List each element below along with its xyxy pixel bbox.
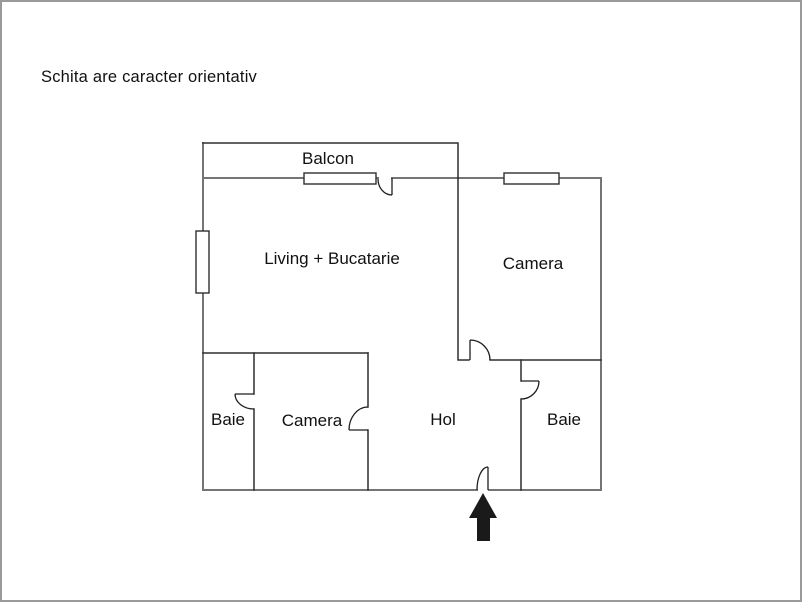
outer-walls xyxy=(203,143,601,490)
doors xyxy=(235,178,539,490)
left-wall-window-icon xyxy=(196,231,209,293)
entrance-door-icon xyxy=(477,467,488,490)
room-label-living: Living + Bucatarie xyxy=(264,249,400,269)
baie-left-door-icon xyxy=(235,394,254,409)
camera-top-left-wall xyxy=(458,178,469,360)
interior-walls xyxy=(203,178,601,490)
entrance-arrow-icon xyxy=(469,493,497,541)
floorplan-drawing xyxy=(2,2,802,604)
room-label-baie-right: Baie xyxy=(547,410,581,430)
living-window-icon xyxy=(304,173,376,184)
balcony-door-icon xyxy=(378,178,392,195)
camera-window-icon xyxy=(504,173,559,184)
room-label-balcon: Balcon xyxy=(302,149,354,169)
room-label-baie-left: Baie xyxy=(211,410,245,430)
camera-bottom-door-icon xyxy=(349,407,368,430)
floorplan-page: { "title": "Schita are caracter orientat… xyxy=(0,0,802,602)
camera-top-door-icon xyxy=(470,340,490,360)
room-label-camera-bottom: Camera xyxy=(282,411,342,431)
windows xyxy=(196,173,559,293)
room-label-hol: Hol xyxy=(430,410,456,430)
room-label-camera-top: Camera xyxy=(503,254,563,274)
baie-right-door-icon xyxy=(521,381,539,399)
